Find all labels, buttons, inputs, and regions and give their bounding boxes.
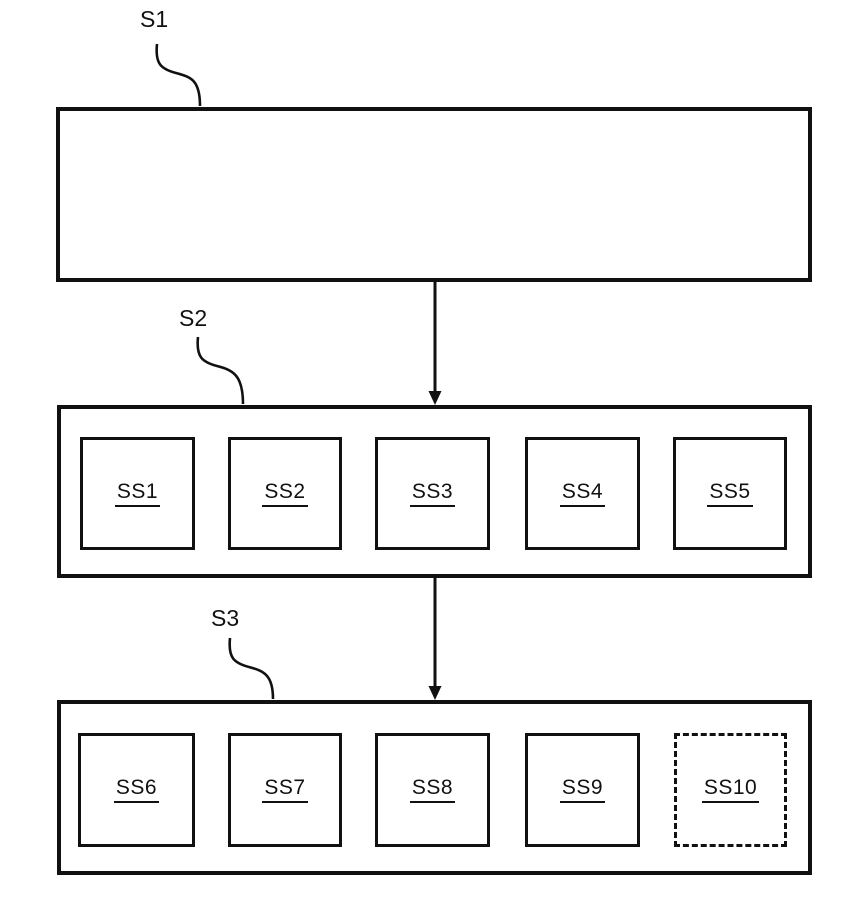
step-box-ss9: SS9: [525, 733, 640, 847]
step-label-ss2: SS2: [262, 481, 307, 507]
step-label-ss3: SS3: [410, 481, 455, 507]
stage-box-s1: [56, 107, 812, 282]
step-box-ss7: SS7: [228, 733, 342, 847]
step-label-ss7: SS7: [262, 777, 307, 803]
step-label-ss5: SS5: [707, 481, 752, 507]
step-label-ss10: SS10: [702, 777, 759, 803]
step-box-ss2: SS2: [228, 437, 342, 550]
step-box-ss4: SS4: [525, 437, 640, 550]
leader-line-s3: [230, 638, 273, 699]
stage-label-s1: S1: [140, 8, 168, 31]
arrowhead-s1-s2: [429, 391, 442, 405]
leader-line-s1: [157, 44, 200, 106]
step-label-ss9: SS9: [560, 777, 605, 803]
stage-label-s2: S2: [179, 307, 207, 330]
stage-label-s3: S3: [211, 607, 239, 630]
step-box-ss3: SS3: [375, 437, 490, 550]
step-box-ss8: SS8: [375, 733, 490, 847]
step-label-ss6: SS6: [114, 777, 159, 803]
step-box-ss6: SS6: [78, 733, 195, 847]
step-box-ss5: SS5: [673, 437, 787, 550]
leader-line-s2: [198, 337, 243, 404]
step-label-ss4: SS4: [560, 481, 605, 507]
step-label-ss1: SS1: [115, 481, 160, 507]
arrowhead-s2-s3: [429, 686, 442, 700]
step-box-ss10: SS10: [674, 733, 787, 847]
flow-diagram: S1 S2 S3 SS1 SS2 SS3 SS4 SS5 SS6 SS7 SS8…: [0, 0, 860, 904]
step-label-ss8: SS8: [410, 777, 455, 803]
step-box-ss1: SS1: [80, 437, 195, 550]
